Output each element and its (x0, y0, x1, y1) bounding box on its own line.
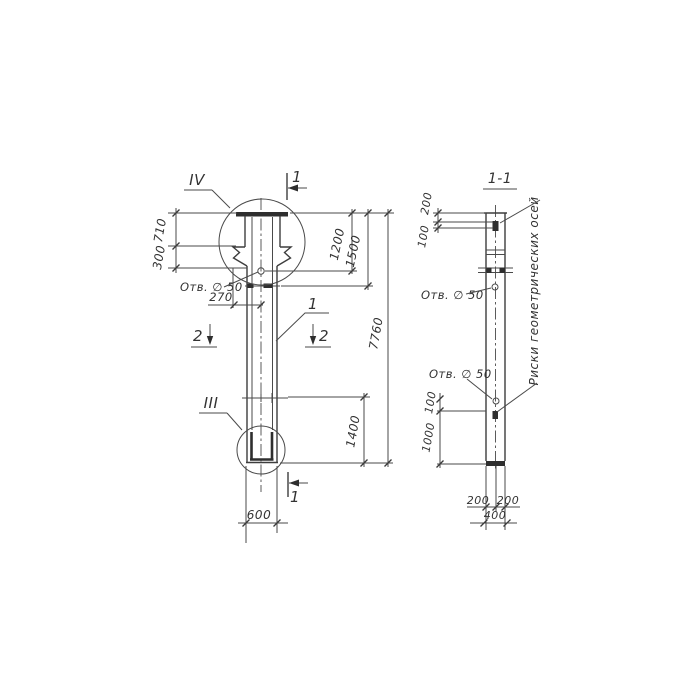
section2-right-label: 2 (319, 327, 329, 345)
dim-600: 600 (247, 508, 271, 522)
hole-leader-lower (467, 379, 492, 399)
dim-1500: 1500 (343, 234, 363, 269)
drawing-sheet: IV III 1 1 2 2 1 Отв. ∅ 50 (0, 0, 700, 700)
dim-400: 400 (484, 509, 507, 522)
left-view: IV III 1 1 2 2 1 Отв. ∅ 50 (150, 168, 394, 543)
section-view: 1-1 Отв. ∅ 50 Отв. ∅ 50 Риски геоме (415, 171, 541, 530)
section2-right-arrowhead (310, 336, 316, 345)
marker-iii-leader (227, 413, 242, 430)
dim-200-top: 200 (418, 191, 435, 215)
console-left (233, 247, 247, 266)
dim-7760: 7760 (366, 316, 385, 350)
detail-circle-top (219, 199, 305, 285)
section-flange-pad-right (500, 268, 506, 274)
section-bottom-band (486, 461, 505, 466)
axis-label-leader-lower (497, 383, 537, 412)
marker-iv-leader (212, 190, 230, 208)
dim-100-top: 100 (415, 224, 432, 248)
section-title: 1-1 (488, 171, 512, 187)
hole-label-upper: Отв. ∅ 50 (421, 288, 484, 302)
axis-marks-label: Риски геометрических осей (527, 196, 541, 385)
axis-mark-upper (493, 221, 499, 231)
section2-left-arrowhead (207, 336, 213, 345)
hole-label-lower: Отв. ∅ 50 (429, 367, 492, 381)
dim-1000: 1000 (420, 421, 438, 453)
console-right (277, 247, 291, 266)
section2-left-label: 2 (193, 327, 203, 345)
dim-200-bottom-left: 200 (467, 494, 490, 507)
shaft-leader-label: 1 (308, 295, 318, 313)
dim-300: 300 (150, 244, 168, 270)
section1-bottom-label: 1 (290, 488, 300, 506)
technical-drawing: IV III 1 1 2 2 1 Отв. ∅ 50 (0, 0, 700, 700)
section1-top-label: 1 (292, 168, 302, 186)
detail-marker-iv: IV (189, 171, 206, 189)
hole-circle-lower (493, 398, 499, 404)
hole-circle-upper (492, 284, 498, 290)
cap-plate (236, 212, 288, 217)
section-flange-pad-left (487, 268, 492, 274)
dim-270: 270 (209, 290, 232, 304)
dim-1400: 1400 (343, 414, 362, 448)
dim-100-mid: 100 (422, 390, 439, 414)
detail-marker-iii: III (204, 394, 219, 412)
section1-bottom-arrowhead (289, 480, 299, 487)
dim-200-bottom-right: 200 (497, 494, 520, 507)
dim-710: 710 (151, 217, 169, 243)
